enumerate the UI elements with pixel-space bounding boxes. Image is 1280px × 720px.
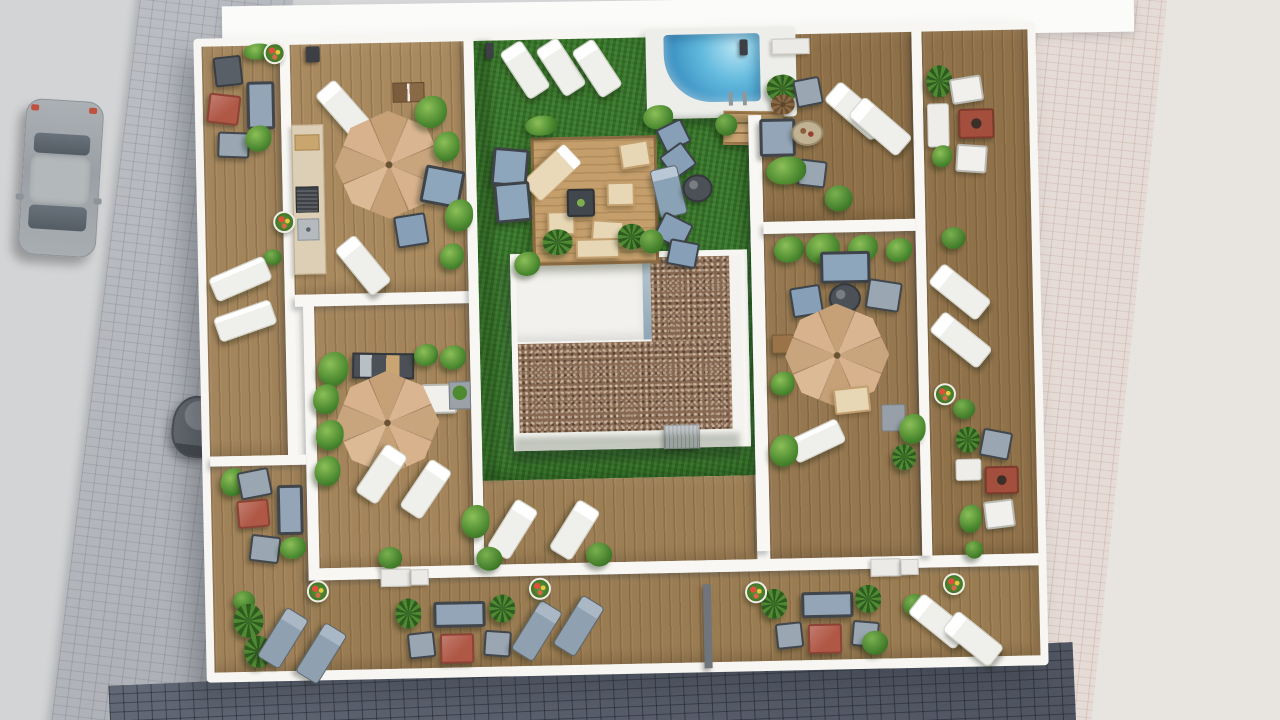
sofa <box>759 118 796 157</box>
armchair <box>212 55 243 88</box>
armchair <box>483 630 512 658</box>
cutting-board <box>294 134 319 151</box>
rooftop-building <box>193 21 1048 682</box>
armchair <box>865 278 903 313</box>
sofa <box>433 601 486 628</box>
pool-ladder <box>729 91 747 105</box>
skylight-strip <box>642 257 652 339</box>
aerial-render-stage: Aerial 3D render of residential rooftop … <box>0 0 1280 720</box>
lounge-cushion <box>606 182 634 207</box>
car-roof <box>28 154 91 206</box>
car-taillight <box>31 104 39 110</box>
fire-pit-table <box>984 466 1019 495</box>
lamp-post <box>485 43 493 59</box>
car-taillight <box>89 108 97 114</box>
armchair <box>666 238 700 269</box>
armchair <box>955 144 988 174</box>
gravel-roof-east <box>650 256 731 342</box>
armchair <box>249 534 282 564</box>
lounge-cushion <box>618 139 652 169</box>
armchair <box>949 74 985 105</box>
armchair <box>407 631 437 660</box>
car-mirror <box>93 198 101 204</box>
armchair <box>979 428 1014 461</box>
core-shadow-south <box>514 433 740 464</box>
car-rear-window <box>33 132 90 155</box>
sofa <box>493 181 532 224</box>
parked-car <box>17 98 102 256</box>
lamp-post <box>739 39 747 55</box>
coffee-table <box>808 623 843 654</box>
armchair <box>775 621 805 650</box>
car-mirror <box>16 193 24 199</box>
lounge-cushion <box>833 385 872 415</box>
sofa <box>820 251 871 284</box>
utility-box <box>870 558 900 577</box>
gravel-roof-south <box>518 340 733 433</box>
sofa <box>277 485 304 536</box>
wall-lamp <box>306 46 320 62</box>
utility-box <box>380 568 410 587</box>
sofa <box>801 591 854 618</box>
fire-pit-table <box>958 108 995 139</box>
wall-left-div <box>210 455 306 467</box>
utility-box <box>900 559 918 575</box>
utility-box <box>411 569 429 585</box>
armchair <box>792 76 824 109</box>
coffee-table <box>440 633 475 664</box>
planter <box>449 381 472 409</box>
sink <box>297 218 319 240</box>
car-windshield <box>28 204 87 231</box>
grill <box>295 186 319 212</box>
armchair <box>393 212 430 249</box>
side-table <box>206 92 241 126</box>
bench <box>927 103 950 147</box>
sofa <box>246 81 275 130</box>
bench <box>955 458 981 481</box>
pool-shower-block <box>771 38 809 55</box>
armchair <box>983 498 1016 530</box>
side-table <box>236 498 270 529</box>
bench-cushion <box>576 238 620 259</box>
coffee-table <box>567 189 596 218</box>
